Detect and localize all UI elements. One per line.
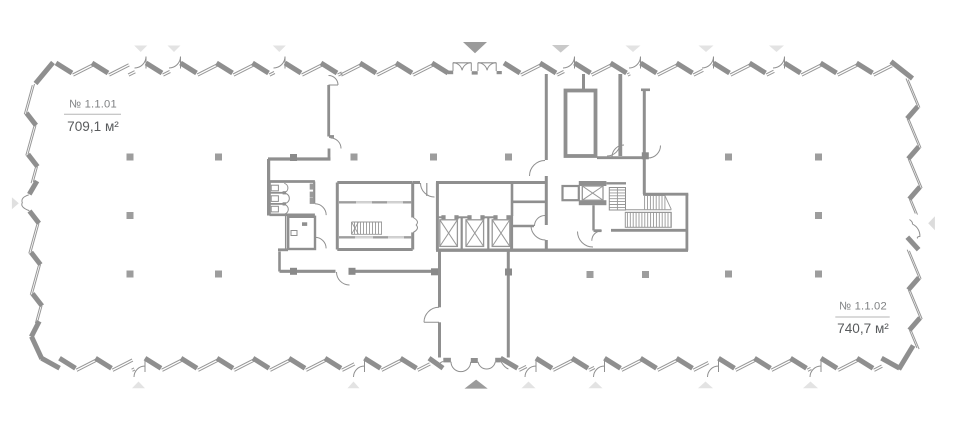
- svg-text:№ 1.1.01: № 1.1.01: [69, 99, 117, 111]
- svg-text:740,7 м²: 740,7 м²: [837, 321, 889, 336]
- svg-text:№ 1.1.02: № 1.1.02: [839, 301, 887, 313]
- svg-text:709,1 м²: 709,1 м²: [67, 119, 119, 134]
